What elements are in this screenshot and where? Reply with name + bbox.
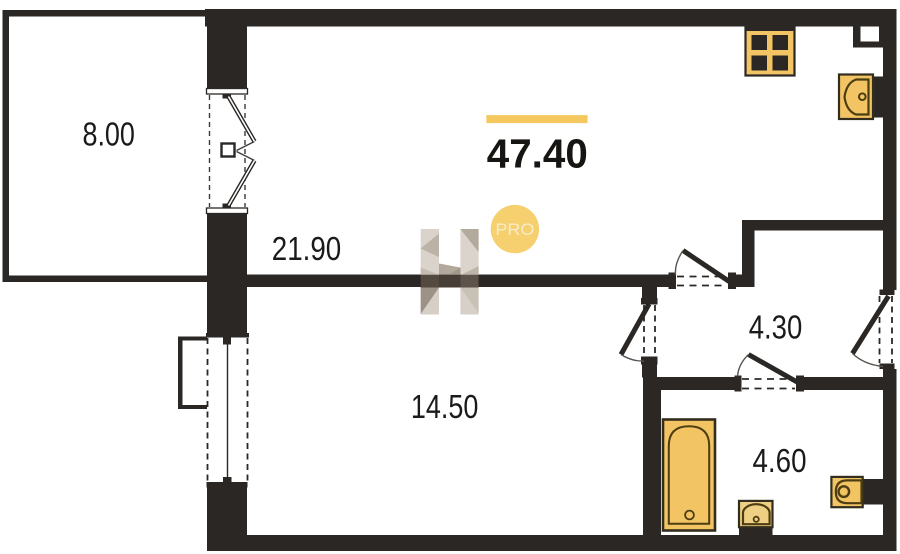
svg-text:47.40: 47.40 bbox=[487, 131, 588, 177]
svg-text:21.90: 21.90 bbox=[272, 230, 342, 267]
svg-text:4.60: 4.60 bbox=[753, 442, 807, 479]
svg-text:14.50: 14.50 bbox=[411, 388, 479, 425]
svg-text:4.30: 4.30 bbox=[749, 308, 803, 345]
svg-text:PRO: PRO bbox=[495, 220, 534, 239]
svg-text:8.00: 8.00 bbox=[82, 115, 135, 152]
